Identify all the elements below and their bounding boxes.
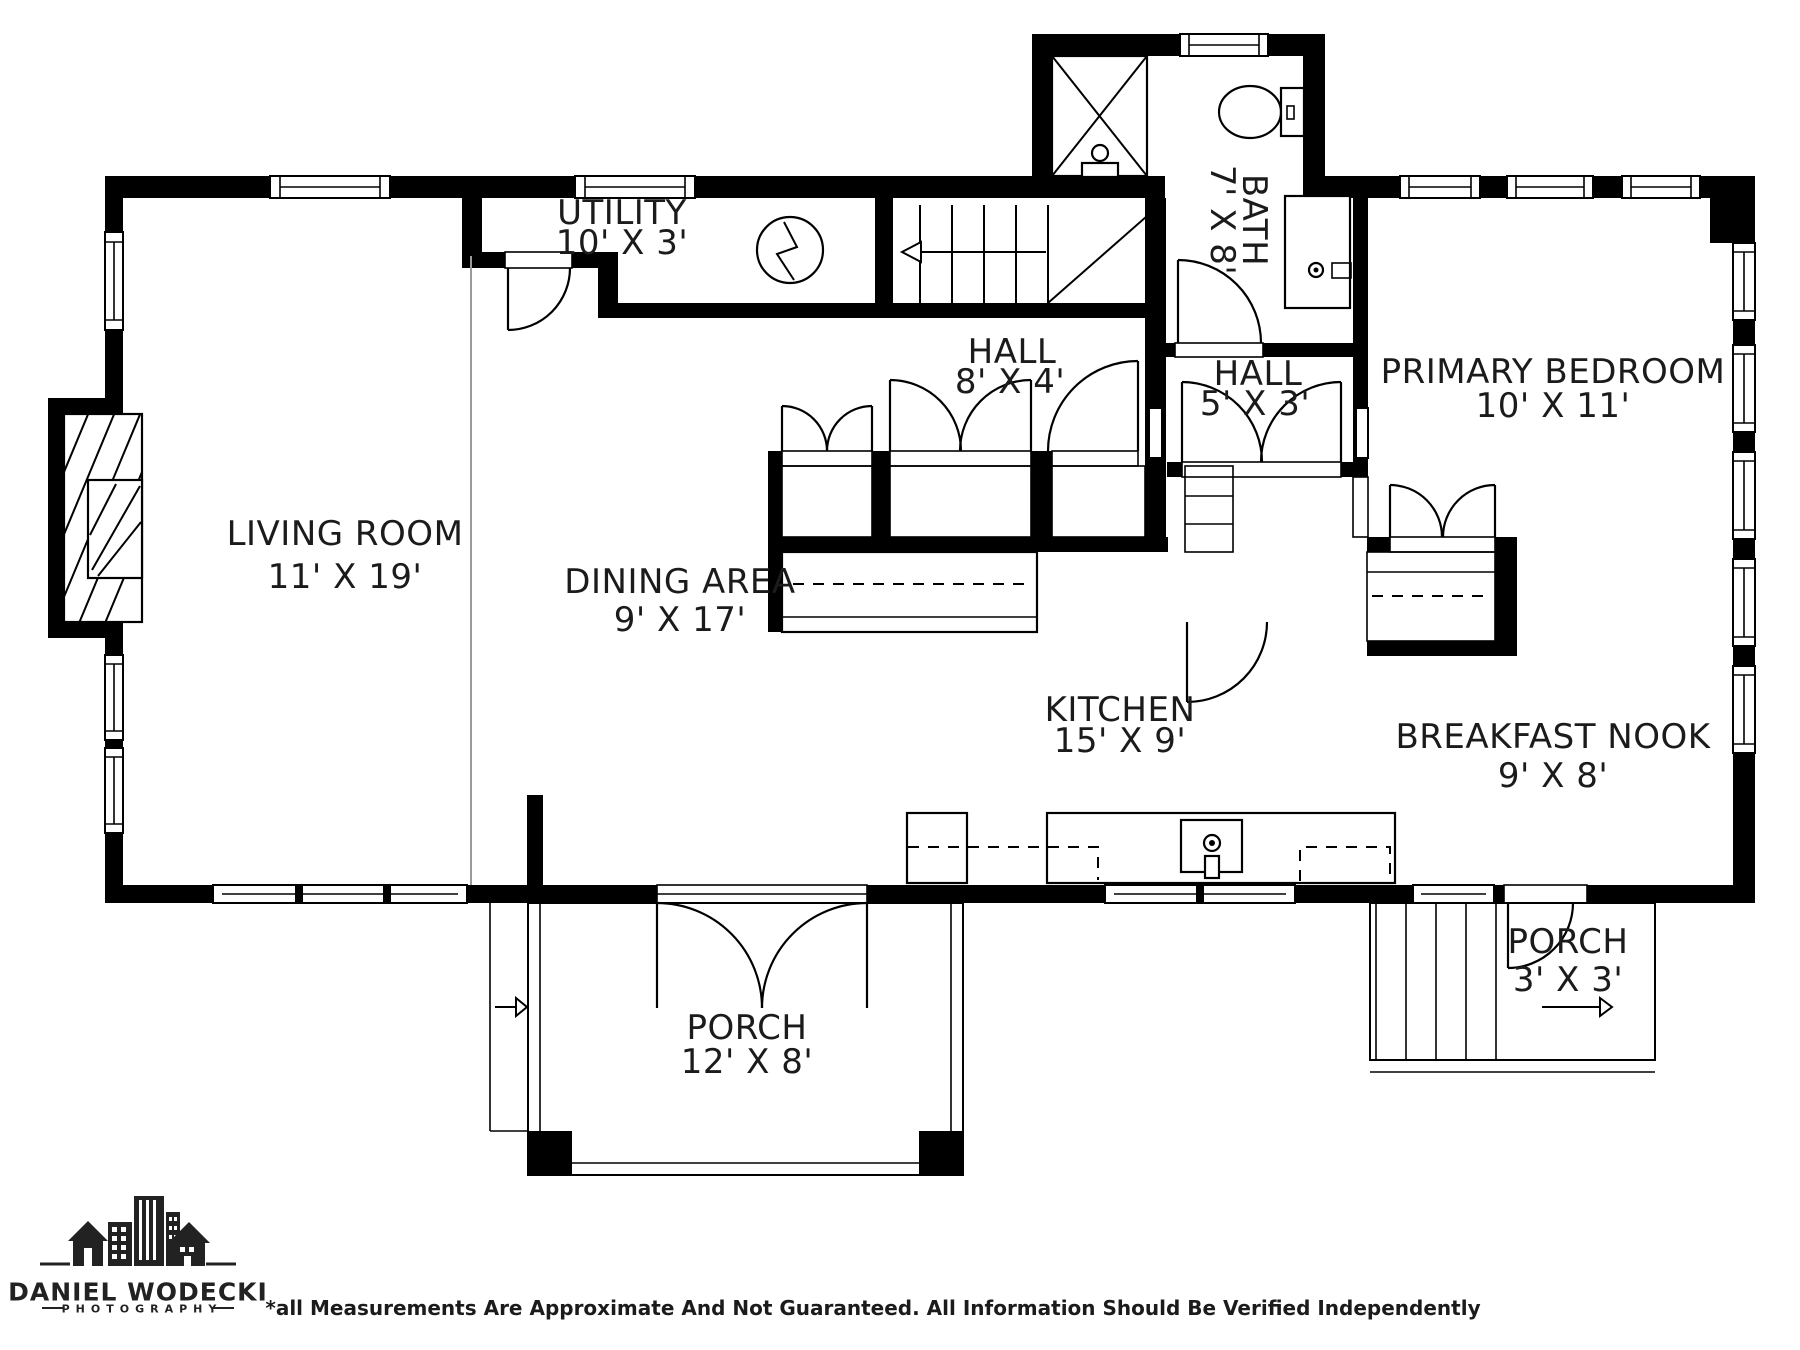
disclaimer-text: *all Measurements Are Approximate And No… — [265, 1296, 1480, 1320]
interior-slot — [1356, 408, 1368, 458]
porch-structures — [490, 903, 1655, 1175]
window — [105, 232, 123, 330]
utility-door — [508, 268, 570, 330]
room-dims-hall-small: 5' X 3' — [1200, 384, 1310, 424]
bedroom-closet-door — [1390, 485, 1495, 537]
porch-post — [919, 1131, 963, 1175]
window — [1180, 34, 1268, 56]
room-dims-primary-bedroom: 10' X 11' — [1476, 386, 1631, 426]
logo: DANIEL WODECKI PHOTOGRAPHY — [8, 1196, 268, 1316]
closet-double-door — [782, 406, 872, 451]
window — [1622, 176, 1700, 198]
window — [105, 748, 123, 833]
window — [105, 655, 123, 740]
bath-sink-icon — [1285, 196, 1351, 308]
room-dims-bath: 7' X 8' — [1202, 165, 1242, 275]
window — [1413, 885, 1494, 903]
window — [1733, 666, 1755, 753]
porch-post — [528, 1131, 572, 1175]
room-dims-porch-main: 12' X 8' — [681, 1042, 814, 1082]
room-dims-kitchen: 15' X 9' — [1054, 721, 1187, 761]
porch-steps — [490, 903, 528, 1131]
window — [1400, 176, 1480, 198]
kitchen-counter — [782, 552, 1037, 632]
room-dims-porch-side: 3' X 3' — [1513, 960, 1623, 1000]
room-dims-utility: 10' X 3' — [556, 223, 689, 263]
window — [1733, 345, 1755, 432]
interior-slot — [1149, 408, 1162, 458]
window — [1733, 243, 1755, 320]
fireplace-icon — [0, 400, 198, 640]
room-dims-hall-main: 8' X 4' — [955, 362, 1065, 402]
stairs-icon — [902, 202, 1163, 303]
kitchen-sink-icon — [1181, 820, 1242, 878]
room-label-living-room: LIVING ROOM — [227, 514, 464, 554]
kitchen-door — [1187, 622, 1267, 702]
porch-steps — [1376, 903, 1496, 1060]
direction-arrow-icon — [1600, 998, 1612, 1016]
shower-icon — [1052, 56, 1147, 177]
room-dims-breakfast-nook: 9' X 8' — [1498, 756, 1608, 796]
window — [213, 885, 467, 903]
kitchen-counter — [907, 813, 1395, 883]
room-dims-dining-area: 9' X 17' — [614, 600, 747, 640]
floor-plan: LIVING ROOM 11' X 19' DINING AREA 9' X 1… — [0, 0, 1800, 1350]
window — [1507, 176, 1593, 198]
logo-studio-tagline: PHOTOGRAPHY — [62, 1303, 223, 1316]
porch-double-door — [657, 903, 867, 1008]
logo-buildings-icon — [40, 1196, 236, 1266]
direction-arrow-icon — [516, 998, 527, 1016]
room-label-dining-area: DINING AREA — [564, 562, 795, 602]
window — [270, 176, 390, 198]
window — [1733, 559, 1755, 646]
electrical-panel-icon — [757, 217, 823, 283]
bedroom-closet — [1367, 552, 1495, 641]
window — [1733, 452, 1755, 539]
room-dims-living-room: 11' X 19' — [268, 557, 423, 597]
room-label-breakfast-nook: BREAKFAST NOOK — [1395, 717, 1711, 757]
window — [1105, 885, 1295, 903]
room-label-porch-side: PORCH — [1507, 922, 1628, 962]
toilet-icon — [1219, 86, 1304, 138]
